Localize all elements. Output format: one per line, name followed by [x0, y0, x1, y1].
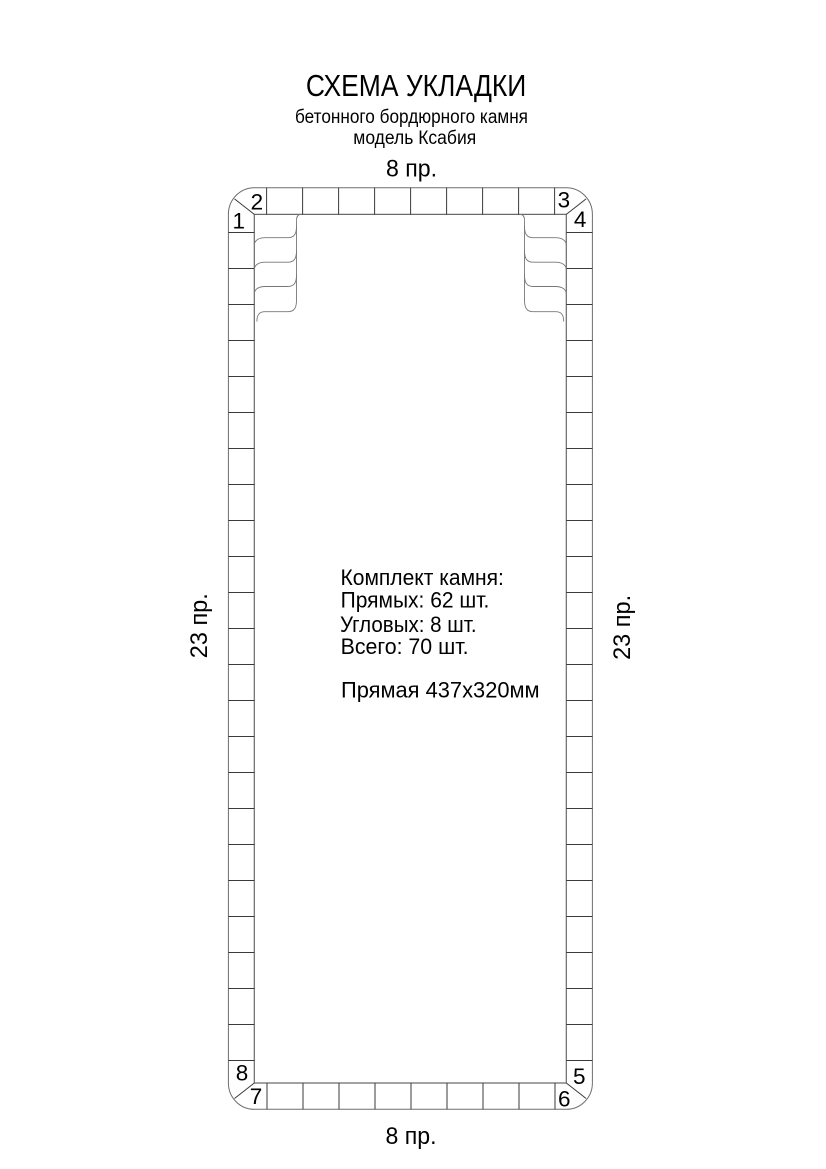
- svg-text:4: 4: [574, 207, 587, 232]
- svg-text:Прямых: 62 шт.: Прямых: 62 шт.: [341, 588, 490, 613]
- svg-text:бетонного бордюрного камня: бетонного бордюрного камня: [295, 107, 528, 128]
- svg-text:Комплект камня:: Комплект камня:: [341, 565, 504, 590]
- svg-text:5: 5: [573, 1064, 586, 1089]
- svg-text:модель Ксабия: модель Ксабия: [353, 128, 476, 149]
- svg-text:Всего: 70 шт.: Всего: 70 шт.: [341, 634, 469, 659]
- svg-text:Прямая 437х320мм: Прямая 437х320мм: [341, 677, 540, 702]
- svg-text:23 пр.: 23 пр.: [609, 595, 636, 660]
- svg-text:1: 1: [233, 209, 246, 234]
- svg-text:СХЕМА УКЛАДКИ: СХЕМА УКЛАДКИ: [306, 68, 526, 103]
- svg-text:23 пр.: 23 пр.: [186, 593, 213, 658]
- svg-text:3: 3: [558, 188, 571, 213]
- svg-text:2: 2: [251, 189, 264, 214]
- svg-text:7: 7: [250, 1084, 263, 1109]
- svg-text:8 пр.: 8 пр.: [386, 156, 437, 183]
- svg-text:6: 6: [558, 1087, 571, 1112]
- svg-text:Угловых: 8 шт.: Угловых: 8 шт.: [340, 612, 477, 637]
- svg-text:8: 8: [236, 1060, 249, 1085]
- svg-text:8 пр.: 8 пр.: [386, 1123, 437, 1150]
